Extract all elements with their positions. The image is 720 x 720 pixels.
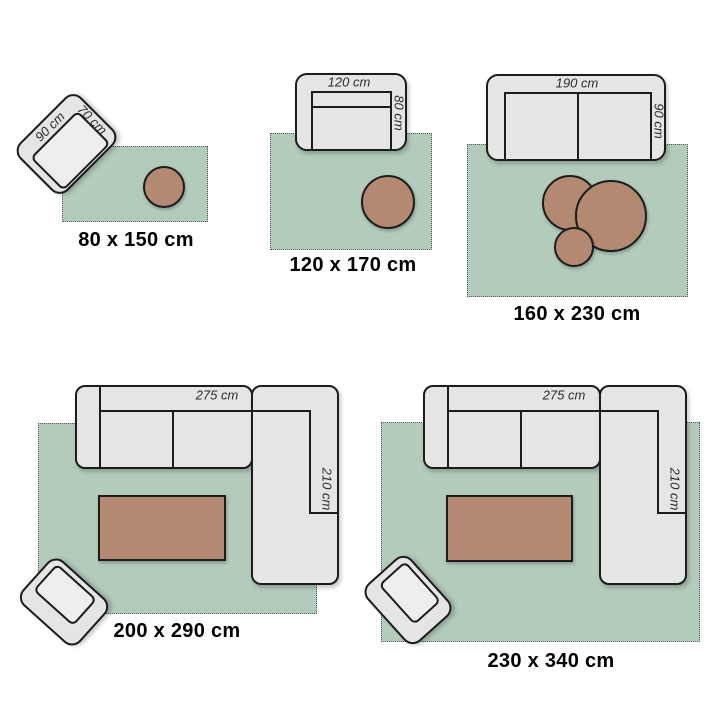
sofa-backrest-line [100, 410, 311, 412]
sofa-armrest-line [447, 387, 449, 467]
nesting-table-small [554, 227, 594, 267]
sofa-seat-divider-line [577, 92, 579, 159]
side-table [143, 166, 185, 208]
sofa-width-label: 190 cm [556, 77, 599, 90]
chaise-backrest-line [309, 412, 311, 514]
sofa-depth-label: 210 cm [321, 468, 334, 511]
sofa-width-label: 120 cm [328, 76, 371, 89]
side-table [361, 175, 415, 229]
chaise-backrest-line [657, 412, 659, 514]
rug-size-comparison-diagram: 90 cm 70 cm 80 x 150 cm 120 cm 80 cm 120… [0, 0, 720, 720]
sofa-depth-label: 80 cm [393, 95, 406, 130]
sofa-seat [311, 91, 392, 149]
sofa-armrest-line [99, 387, 101, 467]
coffee-table [446, 495, 573, 562]
sofa-width-label: 275 cm [543, 389, 586, 402]
sofa-cushion-line [311, 106, 392, 108]
sofa-seat-divider-line [172, 412, 174, 467]
size-label-160x230: 160 x 230 cm [513, 302, 640, 326]
coffee-table [98, 495, 226, 561]
size-label-200x290: 200 x 290 cm [113, 619, 240, 643]
loveseat-sofa: 120 cm 80 cm [295, 73, 407, 151]
size-label-80x150: 80 x 150 cm [78, 228, 194, 252]
sofa-backrest-line [448, 410, 659, 412]
sofa-seat-divider-line [520, 412, 522, 467]
chaise-backrest-end-line [659, 512, 685, 514]
sofa-depth-label: 90 cm [653, 103, 666, 138]
sofa-width-label: 275 cm [196, 389, 239, 402]
sofa-depth-label: 210 cm [669, 468, 682, 511]
size-label-230x340: 230 x 340 cm [487, 649, 614, 673]
chaise-backrest-end-line [311, 512, 337, 514]
size-label-120x170: 120 x 170 cm [289, 253, 416, 277]
two-seater-sofa: 190 cm 90 cm [486, 74, 666, 161]
